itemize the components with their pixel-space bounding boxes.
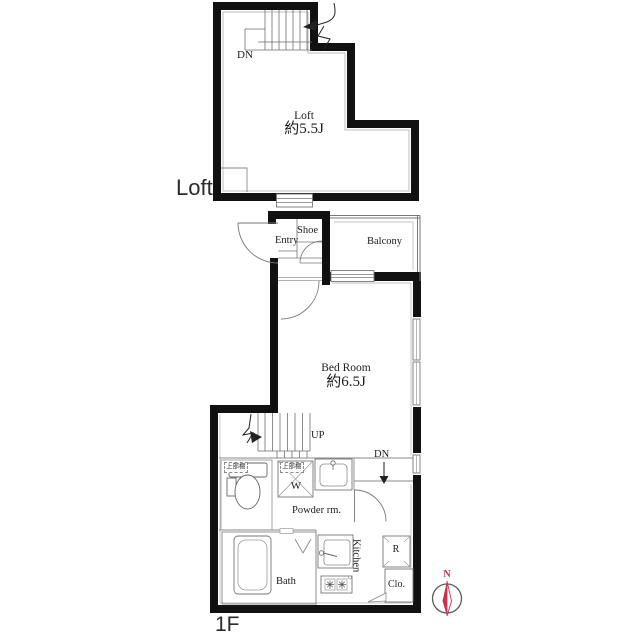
bedroom-name: Bed Room [321, 363, 371, 375]
closet-label: Clo. [388, 580, 405, 590]
up-label: UP [311, 431, 324, 442]
loft-room-area: 約5.5J [284, 122, 324, 137]
kitchen-label: Kitchen [350, 539, 361, 572]
loft-floor-label: Loft [176, 177, 213, 199]
dn-passage [354, 458, 413, 490]
folding-door [368, 593, 386, 602]
loft-dn-label: DN [237, 50, 253, 61]
loft-window [277, 194, 313, 207]
dn-arrow-icon [380, 476, 389, 484]
shoe-door [300, 241, 322, 263]
entry-door [238, 223, 278, 263]
kitchen-sink [318, 535, 353, 568]
kitchen-stove [321, 576, 352, 593]
fridge-label: R [393, 545, 400, 555]
loft-step-line [221, 168, 247, 192]
compass-north-label: N [443, 570, 451, 581]
loft-plan [213, 2, 419, 207]
up-stair-arrow-icon [243, 414, 262, 443]
washer-shelf-label: 上部棚 [280, 462, 304, 473]
washer-label: W [291, 481, 301, 492]
bedroom-area: 約6.5J [326, 375, 366, 390]
floorplan-page: Loft 1F DN Loft 約5.5J Entry Shoe Balcony… [0, 0, 640, 640]
stairs-up [258, 413, 310, 458]
toilet-shelf-label: 上部棚 [224, 462, 248, 473]
dn-label: DN [374, 450, 389, 461]
bath-label: Bath [276, 577, 296, 588]
first-floor-label: 1F [215, 614, 240, 635]
entry-label: Entry [275, 236, 298, 247]
loft-walls [213, 2, 419, 201]
powder-door [355, 490, 387, 522]
compass-icon [433, 581, 462, 616]
loft-stairs-dn [245, 10, 312, 50]
shoe-label: Shoe [297, 226, 318, 237]
washbasin [315, 459, 352, 490]
bedroom-door [278, 278, 322, 320]
powder-room-label: Powder rm. [292, 506, 341, 517]
bathtub [234, 536, 271, 594]
balcony-label: Balcony [367, 237, 402, 248]
floorplan-drawing [0, 0, 640, 640]
first-floor-plan [210, 211, 422, 613]
balcony-window [331, 271, 374, 282]
